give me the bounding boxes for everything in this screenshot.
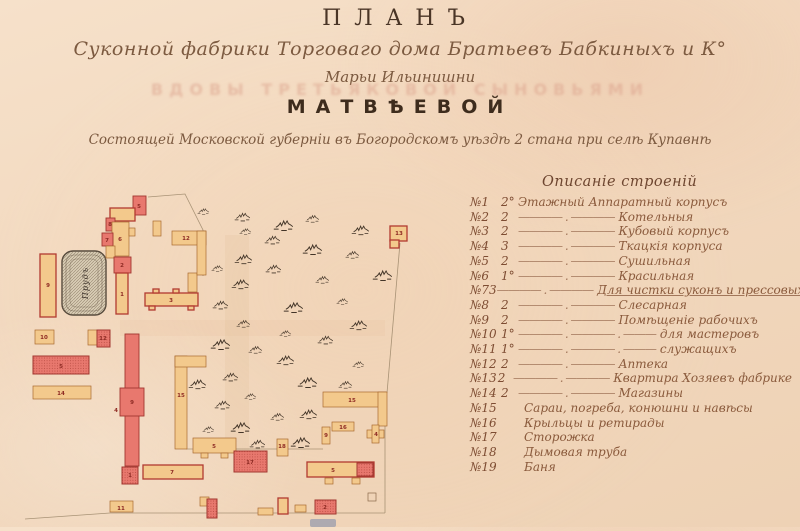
legend-row-leader: ———— . ———— bbox=[518, 269, 614, 284]
legend-row-number: №10 bbox=[470, 327, 501, 342]
map-building: 7 bbox=[102, 233, 113, 246]
legend-row-number: №3 bbox=[470, 224, 501, 239]
building-number-label: 18 bbox=[278, 444, 286, 450]
map-building: 2 bbox=[315, 500, 336, 514]
map-building bbox=[357, 463, 373, 476]
legend-row-name: Аптека bbox=[618, 357, 668, 372]
building-number-label: 5 bbox=[59, 364, 63, 370]
building-number-label: 7 bbox=[105, 238, 109, 244]
building-number-label: 7 bbox=[170, 470, 174, 476]
legend-row-number: №2 bbox=[470, 210, 501, 225]
map-building bbox=[207, 499, 217, 518]
pond-label: Прудъ bbox=[81, 267, 90, 300]
legend-row-storeys: 2 bbox=[501, 357, 518, 372]
legend-row-leader: ———— . ———— bbox=[518, 386, 614, 401]
building-number-label: 4 bbox=[374, 432, 378, 438]
building-number-label: 12 bbox=[99, 336, 107, 342]
legend-row: №43———— . ————Ткацкія корпуса bbox=[470, 239, 792, 254]
legend-row-storeys: 3 bbox=[501, 239, 518, 254]
legend-row: №12°Этажный Аппаратный корпусъ bbox=[470, 195, 792, 210]
legend-row-name: для мастеровъ bbox=[660, 327, 759, 342]
building-number-label: 12 bbox=[182, 236, 190, 242]
map-building: 13 bbox=[390, 226, 407, 248]
map-building: 15 bbox=[323, 392, 387, 426]
legend-row-name: Баня bbox=[524, 460, 556, 475]
legend-row: №52———— . ————Сушильная bbox=[470, 254, 792, 269]
map-building bbox=[278, 498, 288, 514]
legend-row-name: Кубовый корпусъ bbox=[618, 224, 729, 239]
legend-rows: №12°Этажный Аппаратный корпусъ№22———— . … bbox=[470, 195, 792, 474]
legend-row: №15Сараи, погреба, конюшни и навѣсы bbox=[470, 401, 792, 416]
legend-row: №82———— . ————Слесарная bbox=[470, 298, 792, 313]
scanned-plan-page: { "header": { "title": "ПЛАНЪ", "subtitl… bbox=[0, 0, 800, 527]
legend-row-name: Квартира Хозяевъ фабрике bbox=[613, 371, 792, 386]
map-building bbox=[368, 493, 376, 501]
legend-row-name: Сушильная bbox=[618, 254, 690, 269]
plot-boundary-line bbox=[387, 243, 400, 393]
plan-title: ПЛАНЪ bbox=[0, 6, 800, 31]
building-number-label: 11 bbox=[117, 506, 125, 512]
map-building: 2 bbox=[114, 257, 131, 273]
map-building: 9 bbox=[120, 388, 144, 416]
plan-map-svg: Прудъ58672131291012514941711155171821516… bbox=[25, 180, 475, 527]
legend-row-name: Слесарная bbox=[618, 298, 686, 313]
map-building: 9 bbox=[322, 427, 330, 444]
building-number-label: 17 bbox=[246, 460, 254, 466]
building-number-label: 15 bbox=[348, 398, 356, 404]
legend-row-number: №15 bbox=[470, 401, 501, 416]
legend-row-leader: ———— . ———— . ——— bbox=[518, 342, 656, 357]
legend-row: №22———— . ————Котельныя bbox=[470, 210, 792, 225]
building-number-label: 5 bbox=[137, 204, 141, 210]
map-building: 15 bbox=[175, 356, 206, 449]
legend-row: №61°———— . ————Красильная bbox=[470, 269, 792, 284]
legend-row-name: Ткацкія корпуса bbox=[618, 239, 722, 254]
building-number-label: 16 bbox=[339, 425, 347, 431]
map-building bbox=[325, 478, 360, 484]
map-building: 1 bbox=[116, 273, 128, 314]
map-building: 9 bbox=[40, 254, 56, 317]
scan-edge-mark bbox=[310, 519, 336, 527]
map-building: 16 bbox=[332, 422, 354, 431]
owner-surname: МАТВѢЕВОЙ bbox=[0, 96, 800, 118]
legend: Описаніе строеній №12°Этажный Аппаратный… bbox=[470, 174, 792, 474]
map-building bbox=[88, 330, 97, 345]
legend-row-number: №8 bbox=[470, 298, 501, 313]
legend-row-leader: ———— . ———— bbox=[518, 298, 614, 313]
legend-row-storeys: 2 bbox=[501, 313, 518, 328]
building-number-label: 6 bbox=[118, 237, 122, 243]
map-building: 18 bbox=[277, 439, 288, 456]
legend-row-storeys: 2 bbox=[498, 371, 513, 386]
map-building: 12 bbox=[172, 231, 206, 275]
legend-row-storeys: 1° bbox=[501, 327, 518, 342]
legend-row-leader: ———— . ———— bbox=[518, 313, 614, 328]
legend-row-number: №4 bbox=[470, 239, 501, 254]
legend-row-number: №16 bbox=[470, 416, 501, 431]
legend-row-number: №18 bbox=[470, 445, 501, 460]
map-building: 10 bbox=[35, 330, 54, 344]
legend-row: №122———— . ————Аптека bbox=[470, 357, 792, 372]
map-building bbox=[106, 246, 115, 258]
legend-row: №92———— . ————Помѣщеніе рабочихъ bbox=[470, 313, 792, 328]
building-number-label: 10 bbox=[40, 335, 48, 341]
map-building bbox=[188, 273, 197, 292]
legend-row: №17Сторожка bbox=[470, 430, 792, 445]
legend-row-name: Дымовая труба bbox=[524, 445, 627, 460]
legend-row-leader: ———— . ———— . ——— bbox=[518, 327, 656, 342]
legend-row: №111°———— . ———— . ———служащихъ bbox=[470, 342, 792, 357]
legend-row-name: Сараи, погреба, конюшни и навѣсы bbox=[524, 401, 753, 416]
legend-header: Описаніе строеній bbox=[542, 174, 792, 190]
map-building bbox=[129, 228, 135, 236]
legend-row-leader: ———— . ———— bbox=[518, 210, 614, 225]
map-building: 1 bbox=[122, 467, 138, 484]
map-building: 4 bbox=[114, 408, 118, 414]
legend-row-storeys: 2 bbox=[501, 386, 518, 401]
legend-row-leader: ———— . ———— bbox=[513, 371, 609, 386]
legend-row: №73———— . ————Для чистки суконъ и прессо… bbox=[470, 283, 792, 298]
legend-row-leader: ———— . ———— bbox=[518, 254, 614, 269]
legend-row-number: №17 bbox=[470, 430, 501, 445]
map-building bbox=[153, 221, 161, 236]
legend-row: №101°———— . ———— . ———для мастеровъ bbox=[470, 327, 792, 342]
building-number-label: 9 bbox=[324, 433, 328, 439]
legend-row-number: №11 bbox=[470, 342, 501, 357]
legend-row-storeys: 3 bbox=[489, 283, 497, 298]
legend-row-storeys: 2 bbox=[501, 224, 518, 239]
map-building: 14 bbox=[33, 386, 91, 399]
building-number-label: 2 bbox=[120, 263, 124, 269]
map-building: 12 bbox=[97, 330, 110, 347]
legend-row: №32———— . ————Кубовый корпусъ bbox=[470, 224, 792, 239]
building-number-label: 1 bbox=[120, 292, 124, 298]
legend-row-number: №14 bbox=[470, 386, 501, 401]
legend-row-number: №9 bbox=[470, 313, 501, 328]
legend-row-leader: ———— . ———— bbox=[497, 283, 593, 298]
legend-row-leader: ———— . ———— bbox=[518, 239, 614, 254]
legend-row-name: Для чистки суконъ и прессовыхъ bbox=[597, 283, 800, 298]
map-building bbox=[295, 505, 306, 512]
building-number-label: 1 bbox=[128, 473, 132, 479]
building-number-label: 9 bbox=[46, 283, 50, 289]
legend-row-name: Этажный Аппаратный корпусъ bbox=[518, 195, 727, 210]
legend-row-name: Помѣщеніе рабочихъ bbox=[618, 313, 757, 328]
building-number-label: 15 bbox=[177, 393, 185, 399]
legend-row-storeys: 1° bbox=[501, 269, 518, 284]
map-building: 4 bbox=[367, 425, 384, 443]
map-building: 5 bbox=[193, 438, 236, 458]
plot-boundary-line bbox=[25, 513, 110, 519]
building-number-label: 4 bbox=[114, 408, 118, 414]
legend-row: №16Крыльцы и ретирады bbox=[470, 416, 792, 431]
factory-plan-map: Прудъ58672131291012514941711155171821516… bbox=[25, 180, 475, 527]
legend-row-name: Сторожка bbox=[524, 430, 595, 445]
legend-row-name: Красильная bbox=[618, 269, 694, 284]
legend-row-name: Крыльцы и ретирады bbox=[524, 416, 665, 431]
legend-row-number: №6 bbox=[470, 269, 501, 284]
building-number-label: 5 bbox=[331, 468, 335, 474]
legend-row-leader: ———— . ———— bbox=[518, 224, 614, 239]
pond: Прудъ bbox=[62, 251, 106, 315]
legend-row-name: Магазины bbox=[618, 386, 683, 401]
legend-row: №18Дымовая труба bbox=[470, 445, 792, 460]
legend-row-number: №19 bbox=[470, 460, 501, 475]
building-number-label: 9 bbox=[130, 400, 134, 406]
building-number-label: 13 bbox=[395, 231, 403, 237]
legend-row: №132———— . ————Квартира Хозяевъ фабрике bbox=[470, 371, 792, 386]
legend-row-name: служащихъ bbox=[660, 342, 737, 357]
legend-row-storeys: 2° bbox=[501, 195, 518, 210]
building-number-label: 8 bbox=[108, 222, 112, 228]
legend-row-storeys: 2 bbox=[501, 210, 518, 225]
map-building: 7 bbox=[143, 465, 203, 479]
map-building: 17 bbox=[234, 451, 267, 472]
legend-row-number: №1 bbox=[470, 195, 501, 210]
building-number-label: 14 bbox=[57, 391, 65, 397]
legend-row-number: №12 bbox=[470, 357, 501, 372]
legend-row-number: №5 bbox=[470, 254, 501, 269]
legend-row-number: №13 bbox=[470, 371, 498, 386]
map-building: 11 bbox=[110, 501, 133, 512]
legend-row-name: Котельныя bbox=[618, 210, 693, 225]
legend-row-storeys: 2 bbox=[501, 254, 518, 269]
legend-row-storeys: 2 bbox=[501, 298, 518, 313]
map-building: 5 bbox=[33, 356, 89, 374]
legend-row-number: №7 bbox=[470, 283, 489, 298]
location-line: Состоящей Московской губерніи въ Богород… bbox=[0, 132, 800, 148]
building-number-label: 3 bbox=[169, 298, 173, 304]
building-number-label: 5 bbox=[212, 444, 216, 450]
legend-row-leader: ———— . ———— bbox=[518, 357, 614, 372]
legend-row: №19Баня bbox=[470, 460, 792, 475]
map-building bbox=[258, 508, 273, 515]
legend-row-storeys: 1° bbox=[501, 342, 518, 357]
subtitle-factory: Суконной фабрики Торговаго дома Братьевъ… bbox=[0, 38, 800, 60]
building-number-label: 2 bbox=[323, 505, 327, 511]
legend-row: №142———— . ————Магазины bbox=[470, 386, 792, 401]
